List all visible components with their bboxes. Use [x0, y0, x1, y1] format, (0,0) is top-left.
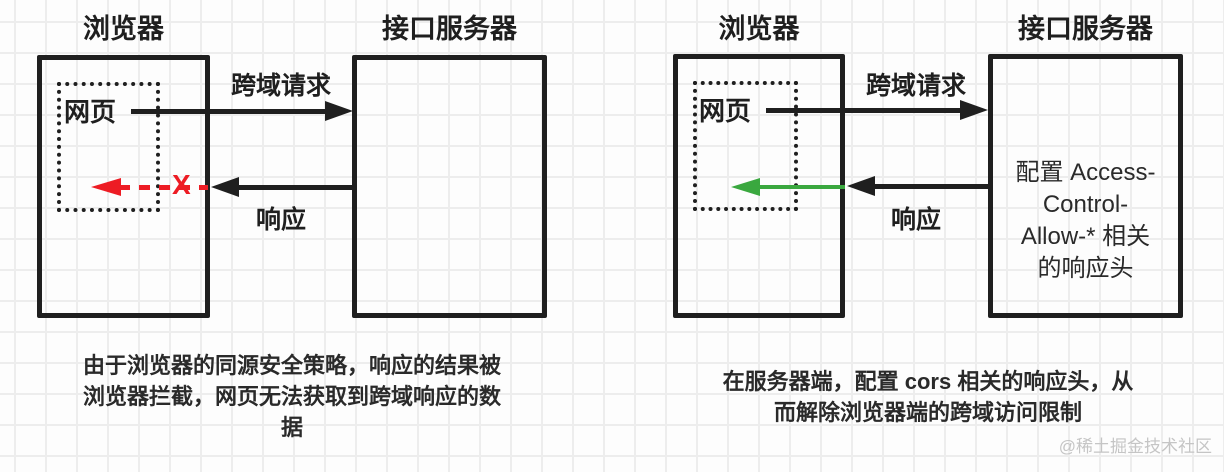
server-config-line: 配置 Access- [993, 157, 1178, 189]
watermark: @稀土掘金技术社区 [1046, 437, 1212, 457]
left-caption-line: 浏览器拦截，网页无法获取到跨域响应的数 [32, 381, 552, 412]
left-browser-title: 浏览器 [37, 13, 210, 45]
left-blocked-arrow-shaft [119, 185, 208, 190]
server-config-line: Control- [993, 189, 1178, 221]
right-response-arrow-head-icon [847, 176, 875, 196]
left-server-title: 接口服务器 [352, 13, 547, 45]
right-caption-line: 在服务器端，配置 cors 相关的响应头，从 [668, 366, 1188, 397]
right-request-arrow-head-icon [960, 100, 988, 120]
server-config-line: Allow-* 相关 [993, 221, 1178, 253]
left-response-label: 响应 [231, 206, 331, 234]
right-server-config-text: 配置 Access- Control- Allow-* 相关 的响应头 [993, 157, 1178, 285]
left-caption-line: 据 [32, 412, 552, 443]
right-caption-line: 而解除浏览器端的跨域访问限制 [668, 397, 1188, 428]
right-request-arrow-shaft [766, 108, 962, 113]
right-response-arrow-shaft [873, 184, 988, 189]
left-response-arrow-shaft [237, 185, 352, 190]
right-allowed-arrow-shaft [760, 185, 845, 189]
right-response-label: 响应 [866, 206, 966, 234]
left-caption: 由于浏览器的同源安全策略，响应的结果被 浏览器拦截，网页无法获取到跨域响应的数 … [32, 350, 552, 443]
right-request-label: 跨域请求 [856, 72, 976, 100]
left-request-label: 跨域请求 [221, 72, 341, 100]
left-server-box [352, 55, 547, 318]
right-browser-title: 浏览器 [673, 13, 845, 45]
left-response-arrow-head-icon [211, 177, 239, 197]
left-request-arrow-head-icon [325, 101, 353, 121]
blocked-x-marker: X [172, 170, 191, 200]
left-blocked-arrow-head-icon [91, 178, 121, 196]
cors-diagram-canvas: 浏览器 接口服务器 网页 跨域请求 响应 X 由于浏览器的同源安全策略，响应的结… [0, 0, 1224, 472]
left-webpage-label: 网页 [64, 98, 116, 126]
right-webpage-label: 网页 [699, 97, 751, 125]
left-request-arrow-shaft [131, 109, 327, 114]
right-allowed-arrow-head-icon [731, 178, 760, 196]
right-caption: 在服务器端，配置 cors 相关的响应头，从 而解除浏览器端的跨域访问限制 [668, 366, 1188, 428]
right-server-title: 接口服务器 [988, 13, 1183, 45]
left-caption-line: 由于浏览器的同源安全策略，响应的结果被 [32, 350, 552, 381]
server-config-line: 的响应头 [993, 253, 1178, 285]
